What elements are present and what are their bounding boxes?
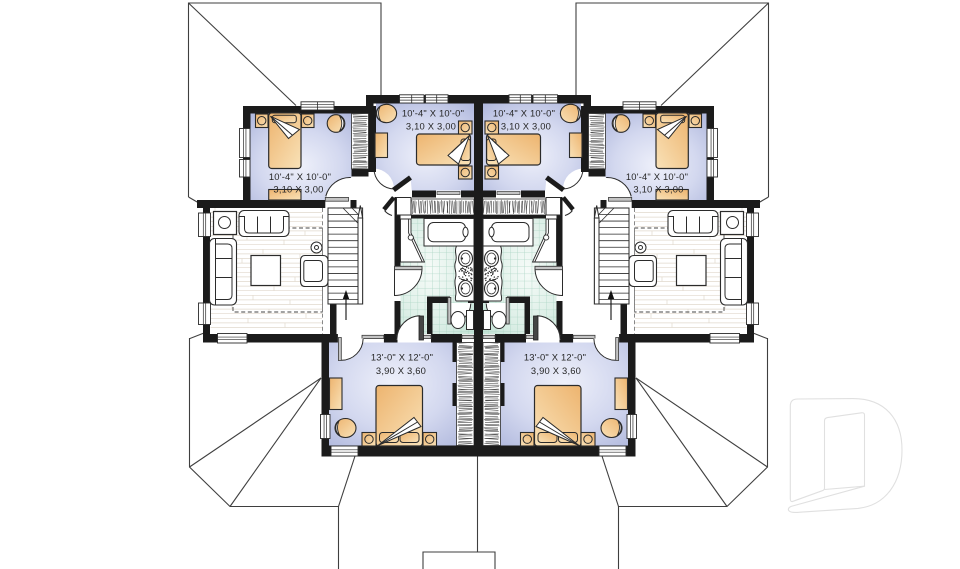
svg-text:10'-4" X 10'-0": 10'-4" X 10'-0" [493,108,555,119]
svg-text:13'-0" X 12'-0": 13'-0" X 12'-0" [371,352,433,363]
svg-text:10'-4" X 10'-0": 10'-4" X 10'-0" [269,171,331,182]
svg-text:3,10 X 3,00: 3,10 X 3,00 [273,184,323,195]
svg-text:10'-4" X 10'-0": 10'-4" X 10'-0" [626,171,688,182]
svg-text:3,90 X 3,60: 3,90 X 3,60 [376,365,426,376]
svg-text:3,10 X 3,00: 3,10 X 3,00 [406,121,456,132]
svg-text:13'-0" X 12'-0": 13'-0" X 12'-0" [524,352,586,363]
svg-text:3,90 X 3,60: 3,90 X 3,60 [531,365,581,376]
svg-text:3,10 X 3,00: 3,10 X 3,00 [501,121,551,132]
svg-text:3,10 X 3,00: 3,10 X 3,00 [633,184,683,195]
svg-text:10'-4" X 10'-0": 10'-4" X 10'-0" [402,108,464,119]
